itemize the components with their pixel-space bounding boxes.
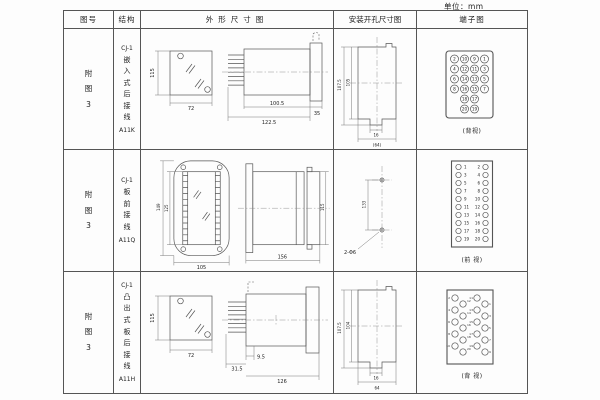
terminal-number: 9 [464, 197, 467, 202]
outline-diagram: 115 72 9.5 31.5 126 [142, 272, 333, 392]
terminal-diagram: 1 2 3 4 5 6 7 8 9 10 11 12 13 14 15 16 1… [417, 156, 527, 254]
model-label: CJ-1 [121, 45, 133, 52]
dim-label: 115 [319, 203, 324, 211]
hook-icon [248, 282, 255, 292]
view-caption: (背视) [463, 126, 482, 135]
terminal-number: 4 [477, 173, 480, 178]
fig-no-cell: 附图3 [64, 29, 114, 150]
terminal-circles: 2 12 4 14 6 16 8 18 10 20 11 1 13 3 15 5… [446, 295, 491, 355]
terminal-number: 4 [453, 67, 456, 72]
header-mounting: 安装开孔尺寸图 [334, 11, 417, 29]
terminal-diagram-cell: 1 2 3 4 5 6 7 8 9 10 11 12 13 14 15 16 1… [417, 150, 527, 271]
fig-no: 附图3 [85, 66, 93, 113]
dim-label: (64) [373, 143, 382, 148]
dim-label: 16 [373, 376, 379, 381]
dim-label: 105 [196, 265, 205, 270]
terminal-number: 8 [448, 332, 450, 336]
model-label: CJ-1 [121, 177, 133, 184]
structure-cell: CJ-1 嵌入式后接线 A11K [114, 29, 141, 150]
side-view: 9.5 31.5 126 [222, 282, 328, 385]
front-view: 149 125 105 [156, 161, 229, 270]
hatch-mark-icon [186, 64, 195, 74]
dim-label: 133 [362, 201, 367, 209]
terminal-number: 14 [462, 77, 468, 82]
terminal-number: 16 [475, 221, 481, 226]
code-label: A11Q [119, 237, 135, 244]
mounting-diagram-cell: 107.5 105 16 (64) [334, 29, 417, 150]
terminal-ladder [215, 172, 220, 245]
screw-hole-icon [217, 165, 222, 170]
terminal-number: 3 [489, 314, 491, 318]
structure-label: 凸出式板后接线 [124, 292, 131, 373]
terminal-number: 14 [475, 213, 481, 218]
terminal-circles: 2 10 9 1 4 12 11 3 6 14 13 5 8 16 15 7 1… [451, 55, 489, 113]
terminal-number: 15 [472, 87, 478, 92]
hatch-mark-icon [195, 79, 204, 89]
hatch-mark-icon [193, 191, 200, 199]
fig-no: 附图3 [85, 309, 93, 356]
dim-label: 126 [277, 379, 287, 385]
terminal-number: 18 [475, 229, 481, 234]
dim-label: 156 [277, 255, 286, 261]
terminal-number: 5 [464, 181, 467, 186]
dim-label: 72 [187, 353, 193, 359]
terminal-number: 19 [464, 237, 470, 242]
terminal-number: 13 [472, 77, 478, 82]
terminal-number: 15 [469, 320, 473, 324]
mounting-diagram-cell: 107.5 104 16 64 [334, 272, 417, 393]
dim-label: 115 [150, 68, 156, 78]
terminal-number: 19 [472, 107, 478, 112]
screw-hole-icon [180, 165, 185, 170]
dim-label: 72 [187, 106, 193, 112]
dim-label: 149 [156, 203, 161, 211]
dim-label: 105 [346, 78, 351, 86]
hatch-mark-icon [186, 309, 195, 319]
terminal-number: 6 [477, 181, 480, 186]
front-view: 115 72 [150, 296, 212, 359]
structure-label: 板前接线 [124, 187, 131, 233]
terminal-number: 20 [462, 107, 468, 112]
terminal-pins [228, 55, 244, 85]
terminal-number: 12 [462, 67, 468, 72]
terminal-number: 8 [477, 189, 480, 194]
terminal-number: 20 [475, 237, 481, 242]
mounting-diagram: 133 2-Φ6 [334, 150, 416, 270]
outline-diagram-cell: 115 72 100.5 35 122.5 [141, 29, 334, 150]
hatch-mark-icon [195, 324, 204, 334]
terminal-number: 12 [475, 205, 481, 210]
terminal-number: 3 [483, 67, 486, 72]
dim-label: 16 [373, 133, 379, 138]
dim-label: 104 [346, 322, 351, 330]
outline-diagram: 115 72 100.5 35 122.5 [142, 29, 333, 149]
terminal-number: 1 [489, 302, 491, 306]
front-view: 115 72 [150, 51, 212, 112]
fig-no-cell: 附图3 [64, 272, 114, 393]
terminal-number: 1 [483, 57, 486, 62]
terminal-number: 6 [448, 320, 450, 324]
header-structure: 结构 [114, 11, 141, 29]
terminal-diagram-cell: 2 12 4 14 6 16 8 18 10 20 11 1 13 3 15 5… [417, 272, 527, 393]
terminal-number: 16 [462, 87, 468, 92]
model-label: CJ-1 [121, 282, 133, 289]
terminal-number: 10 [462, 57, 468, 62]
dim-label: 64 [374, 386, 380, 391]
dim-label: 115 [150, 314, 156, 324]
hole-spec-label: 2-Φ6 [344, 250, 356, 256]
terminal-number: 11 [472, 67, 478, 72]
terminal-ladder [182, 172, 187, 245]
header-outline: 外形尺寸图 [141, 11, 334, 29]
fig-no-cell: 附图3 [64, 150, 114, 271]
screw-hole-icon [217, 247, 222, 252]
terminal-number: 7 [483, 87, 486, 92]
terminal-diagram: 2 10 9 1 4 12 11 3 6 14 13 5 8 16 15 7 1… [417, 43, 527, 125]
screw-hole-icon [177, 53, 183, 59]
terminal-number: 13 [464, 213, 470, 218]
dim-label: 107.5 [337, 79, 342, 91]
dim-label: 35 [313, 111, 319, 117]
terminal-number: 18 [462, 97, 468, 102]
dim-label: 125 [163, 204, 168, 212]
terminal-diagram-cell: 2 10 9 1 4 12 11 3 6 14 13 5 8 16 15 7 1… [417, 29, 527, 150]
outline-diagram-cell: 115 72 9.5 31.5 126 [141, 272, 334, 393]
mounting-diagram-cell: 133 2-Φ6 [334, 150, 417, 271]
code-label: A11K [119, 127, 135, 134]
terminal-number: 17 [469, 332, 473, 336]
terminal-diagram: 2 12 4 14 6 16 8 18 10 20 11 1 13 3 15 5… [417, 284, 527, 370]
spec-table: 图号 结构 外形尺寸图 安装开孔尺寸图 端子图 附图3 CJ-1 嵌入式后接线 … [63, 10, 528, 394]
fig-no: 附图3 [85, 187, 93, 234]
side-view: 100.5 35 122.5 [222, 33, 328, 127]
screw-hole-icon [204, 87, 210, 93]
screw-hole-icon [204, 332, 210, 338]
terminal-number: 4 [448, 308, 450, 312]
terminal-number: 1 [464, 165, 467, 170]
header-terminal: 端子图 [417, 11, 527, 29]
screw-hole-icon [180, 247, 185, 252]
terminal-number: 9 [489, 350, 491, 354]
terminal-circles: 1 2 3 4 5 6 7 8 9 10 11 12 13 14 15 16 1… [456, 165, 488, 242]
terminal-number: 13 [469, 308, 473, 312]
header-fig-no: 图号 [64, 11, 114, 29]
structure-cell: CJ-1 板前接线 A11Q [114, 150, 141, 271]
structure-label: 嵌入式后接线 [124, 55, 131, 124]
hook-icon [313, 33, 319, 42]
mounting-diagram: 107.5 105 16 (64) [334, 29, 416, 149]
structure-cell: CJ-1 凸出式板后接线 A11H [114, 272, 141, 393]
terminal-number: 19 [469, 344, 473, 348]
terminal-number: 3 [464, 173, 467, 178]
terminal-number: 7 [464, 189, 467, 194]
terminal-number: 8 [453, 87, 456, 92]
terminal-number: 2 [453, 57, 456, 62]
mounting-diagram: 107.5 104 16 64 [334, 272, 416, 392]
terminal-number: 10 [446, 344, 450, 348]
terminal-number: 11 [464, 205, 470, 210]
dim-label: 107.5 [337, 322, 342, 334]
outline-diagram: 149 125 105 156 115 [142, 150, 333, 270]
outline-diagram-cell: 149 125 105 156 115 [141, 150, 334, 271]
terminal-pins [228, 302, 246, 332]
terminal-number: 10 [475, 197, 481, 202]
terminal-number: 2 [477, 165, 480, 170]
hatch-mark-icon [202, 212, 209, 220]
terminal-number: 2 [448, 296, 450, 300]
terminal-number: 9 [473, 57, 476, 62]
terminal-number: 5 [483, 77, 486, 82]
terminal-number: 15 [464, 221, 470, 226]
dim-label: 31.5 [231, 367, 242, 373]
dim-label: 122.5 [261, 120, 275, 126]
terminal-number: 6 [453, 77, 456, 82]
terminal-number: 17 [464, 229, 470, 234]
view-caption: (背 视) [461, 371, 482, 380]
terminal-number: 5 [489, 326, 491, 330]
side-view: 156 115 [237, 164, 329, 264]
terminal-number: 11 [469, 296, 473, 300]
code-label: A11H [119, 376, 135, 383]
dim-label: 100.5 [269, 101, 283, 107]
view-caption: (前 视) [461, 255, 482, 264]
terminal-number: 17 [472, 97, 478, 102]
dim-label: 9.5 [257, 355, 265, 361]
screw-hole-icon [177, 299, 183, 305]
terminal-number: 7 [489, 338, 491, 342]
